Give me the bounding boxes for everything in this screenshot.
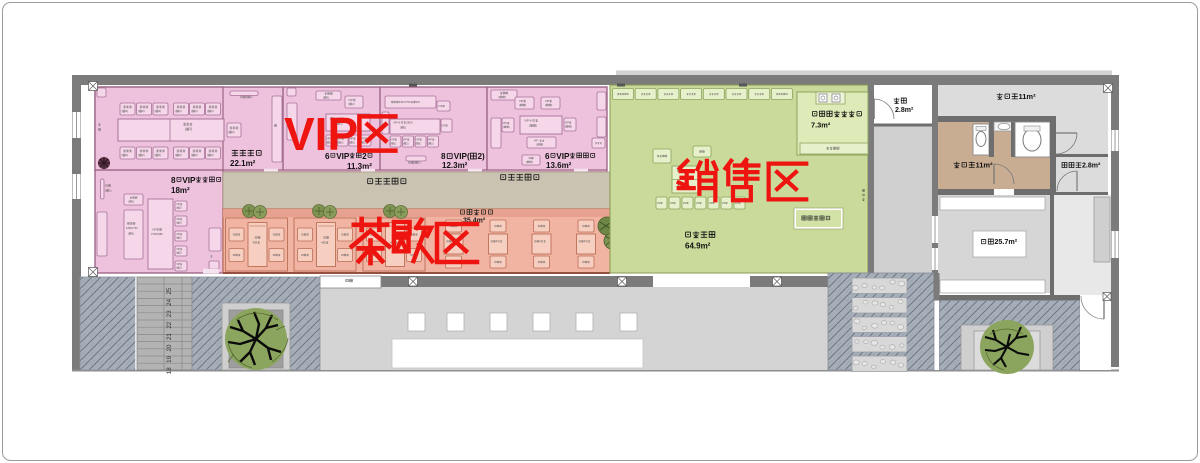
svg-text:(: ( [105,189,106,193]
svg-text:VIP-: VIP- [534,139,539,143]
svg-text:(: ( [155,109,156,113]
svg-text:2400×750: 2400×750 [399,100,411,104]
svg-text:VIP: VIP [722,202,726,205]
svg-text:2): 2) [159,153,162,157]
svg-text:VIP: VIP [182,176,196,185]
svg-text:2): 2) [126,109,129,113]
svg-text:2): 2) [132,199,134,203]
svg-text:18m²: 18m² [171,186,190,195]
svg-text:VIP: VIP [152,227,157,231]
svg-text:(: ( [428,141,429,145]
svg-text:6: 6 [545,152,550,161]
svg-text:(: ( [565,124,566,128]
svg-text:VIP: VIP [670,202,674,205]
svg-text:VIP: VIP [284,108,358,160]
svg-text:24: 24 [166,298,173,305]
svg-text:12.3m²: 12.3m² [442,161,468,170]
svg-text:VIP: VIP [696,202,700,205]
svg-text:2): 2) [478,152,486,161]
svg-text:(: ( [191,109,192,113]
svg-text:VIP: VIP [657,202,661,205]
svg-text:(: ( [207,153,208,157]
svg-text:(: ( [138,109,139,113]
svg-text:1): 1) [132,231,135,235]
svg-text:): ) [525,103,526,107]
svg-text:2.8m²: 2.8m² [895,107,914,114]
svg-text:(: ( [323,96,324,100]
svg-text:VIP: VIP [683,202,687,205]
svg-text:VIP: VIP [441,123,445,127]
svg-text:2): 2) [126,153,129,157]
svg-text:2.8m²: 2.8m² [1082,162,1101,169]
svg-text:VIP: VIP [176,263,180,266]
svg-text:(: ( [128,199,129,203]
svg-text:2): 2) [211,109,214,113]
svg-text:2): 2) [211,153,214,157]
svg-text:2: 2 [362,152,367,161]
svg-text:VIP: VIP [565,121,569,125]
svg-text:2): 2) [195,153,198,157]
svg-text:(: ( [415,141,416,145]
svg-text:2): 2) [179,252,181,255]
svg-text:(: ( [519,103,520,107]
svg-text:2): 2) [327,96,330,100]
svg-text:2): 2) [179,207,181,210]
svg-text:2): 2) [394,141,396,145]
svg-text:(: ( [545,103,546,107]
svg-text:2): 2) [142,153,145,157]
svg-text:VIP: VIP [556,152,570,161]
svg-text:(: ( [155,153,156,157]
svg-text:2): 2) [406,141,408,145]
svg-text:VIP: VIP [709,202,713,205]
svg-text:1): 1) [109,189,112,193]
svg-text:19: 19 [166,355,173,362]
svg-text:(: ( [348,102,349,106]
svg-text:23: 23 [166,310,173,317]
svg-text:): ) [536,124,537,128]
svg-text:(: ( [191,153,192,157]
svg-text:VIP: VIP [390,138,394,142]
svg-text:(: ( [498,95,499,99]
svg-text:2): 2) [431,141,433,145]
svg-text:2): 2) [179,153,182,157]
svg-text:1800×760: 1800×760 [126,226,138,230]
svg-text:2): 2) [142,109,145,113]
svg-text:VIP-6: VIP-6 [524,119,532,123]
svg-text:(: ( [175,109,176,113]
svg-text:(: ( [403,141,404,145]
svg-text:2): 2) [179,109,182,113]
svg-text:): ) [532,160,533,164]
svg-text:8: 8 [441,152,446,161]
svg-text:(: ( [207,109,208,113]
svg-text:VIP: VIP [176,233,180,236]
svg-text:VIP: VIP [176,248,180,251]
svg-text:(: ( [529,124,530,128]
svg-text:VIP: VIP [176,218,180,221]
svg-text:): ) [505,95,506,99]
svg-text:(: ( [400,125,401,129]
svg-text:11m²: 11m² [976,160,994,169]
svg-text:(: ( [138,153,139,157]
svg-text:1): 1) [250,95,253,99]
svg-text:21: 21 [166,333,173,340]
svg-text:): ) [509,125,510,129]
svg-text:VIP(: VIP( [454,152,470,161]
svg-text:2): 2) [404,125,407,129]
svg-text:(: ( [536,142,537,146]
svg-text:VIP: VIP [415,138,419,142]
svg-text:25.7m²: 25.7m² [994,237,1017,246]
svg-text:VIP: VIP [438,104,442,108]
svg-text:2): 2) [195,109,198,113]
svg-text:2700×880: 2700×880 [151,232,163,236]
svg-text:VIP: VIP [403,138,407,142]
svg-text:2): 2) [232,130,235,134]
svg-text:): ) [542,142,543,146]
svg-text:VIP: VIP [503,121,507,125]
svg-text:2800: 2800 [406,120,413,124]
svg-text:(: ( [122,109,123,113]
svg-text:13.6m²: 13.6m² [546,161,572,170]
svg-text:2): 2) [179,267,181,270]
svg-text:(: ( [526,160,527,164]
svg-text:(: ( [390,141,391,145]
svg-text:(: ( [122,153,123,157]
svg-text:VIP-8: VIP-8 [393,120,400,124]
svg-text:(: ( [503,125,504,129]
svg-text:18: 18 [166,367,173,374]
svg-text:2): 2) [352,102,355,106]
svg-text:22.1m²: 22.1m² [230,159,256,168]
svg-text:2): 2) [179,237,181,240]
svg-text:2): 2) [159,109,162,113]
svg-text:VIP: VIP [176,203,180,206]
svg-text:2): 2) [419,141,421,145]
svg-text:20: 20 [166,344,173,351]
svg-text:): ) [571,124,572,128]
svg-text:22: 22 [166,321,173,328]
svg-text:8: 8 [171,176,176,185]
svg-text:): ) [551,103,552,107]
svg-text:25: 25 [166,287,173,294]
svg-text:1): 1) [418,161,421,165]
svg-text:(: ( [128,231,129,235]
svg-text:11m²: 11m² [1019,92,1037,101]
svg-text:7.3m²: 7.3m² [811,120,831,129]
svg-text:(: ( [228,130,229,134]
svg-text:2): 2) [189,127,192,131]
svg-text:2): 2) [179,222,181,225]
svg-text:VIP: VIP [428,138,432,142]
svg-text:(: ( [246,95,247,99]
svg-text:64.9m²: 64.9m² [685,241,711,250]
svg-text:(: ( [175,153,176,157]
svg-text:(: ( [414,161,415,165]
